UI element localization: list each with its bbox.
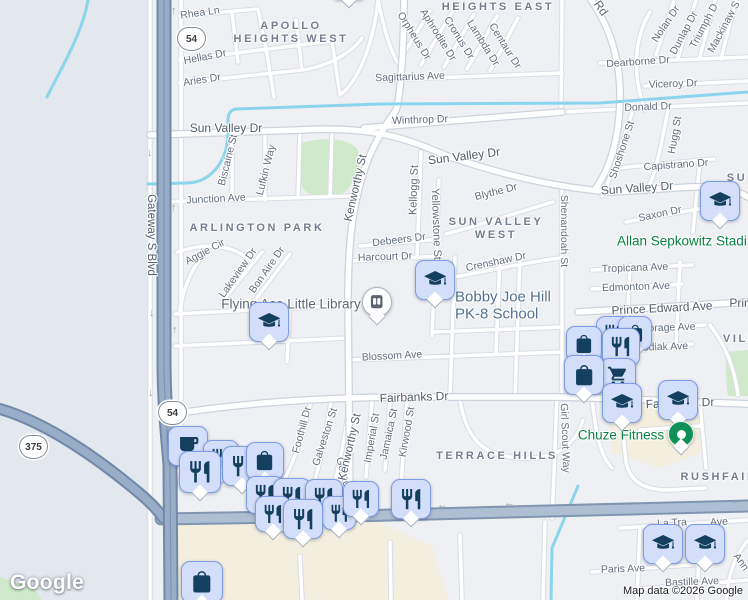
district-label: VILL — [723, 333, 748, 345]
district-label: APOLLO — [260, 20, 321, 32]
route-shield: 54 — [158, 401, 187, 425]
street-label: Harcourt Dr — [358, 250, 413, 264]
one-way-arrow: ↑ — [171, 6, 177, 17]
shopping-bag-icon — [189, 569, 215, 595]
street-label: Kellogg St — [407, 165, 421, 216]
street-label: Sun Valley Dr — [190, 121, 262, 135]
restaurant-marker[interactable] — [283, 499, 323, 539]
graduation-cap-icon — [693, 532, 717, 556]
graduation-cap-icon — [423, 268, 447, 292]
street-label: Winthrop Dr — [392, 113, 448, 127]
restaurant-icon — [187, 459, 213, 485]
street-label: Gateway S Blvd — [145, 194, 157, 276]
library-marker[interactable] — [362, 287, 392, 317]
one-way-arrow: ↓ — [147, 148, 153, 159]
restaurant-marker[interactable] — [179, 451, 221, 493]
one-way-arrow: ← — [437, 500, 448, 511]
district-label: HEIGHTS WEST — [234, 33, 349, 45]
restaurant-marker[interactable] — [391, 479, 431, 519]
book-icon — [368, 293, 385, 310]
restaurant-icon — [291, 507, 315, 531]
graduation-cap-icon — [257, 310, 281, 334]
district-label: WEST — [475, 229, 517, 241]
school-marker[interactable] — [658, 380, 698, 420]
street-label: Edmonton Ave — [602, 280, 670, 294]
one-way-arrow: ↑ — [172, 325, 178, 336]
graduation-cap-icon — [610, 391, 634, 415]
graduation-cap-icon — [666, 388, 690, 412]
store-marker[interactable] — [181, 561, 223, 600]
one-way-arrow: ← — [504, 498, 515, 509]
restaurant-icon — [609, 335, 632, 358]
school-marker[interactable] — [685, 524, 725, 564]
street-label: Yellowstone St — [429, 188, 443, 260]
graduation-cap-icon — [651, 532, 675, 556]
street-label: Fairbanks Dr — [379, 389, 448, 405]
district-label: RUSHFAIR — [680, 471, 748, 483]
district-label: TERRACE HILLS — [436, 450, 558, 462]
street-label: Prin — [729, 296, 748, 310]
street-label: Girl Scout Way — [558, 403, 572, 473]
one-way-arrow: ← — [730, 496, 741, 507]
school-marker[interactable] — [602, 383, 642, 423]
one-way-arrow: ↓ — [148, 388, 154, 399]
one-way-arrow: ↓ — [149, 308, 155, 319]
district-label: HEIGHTS EAST — [442, 1, 555, 13]
restaurant-icon — [399, 487, 423, 511]
school-marker[interactable] — [249, 302, 289, 342]
route-shield: 54 — [177, 27, 206, 51]
poi-label: Allan Sepkowitz Stadi — [617, 234, 747, 249]
map-canvas[interactable]: Google Map data ©2026 Google APOLLOHEIGH… — [0, 0, 748, 600]
school-marker[interactable] — [643, 524, 683, 564]
poi-label: Bobby Joe Hill — [455, 289, 551, 306]
street-label: Tropicana Ave — [602, 261, 669, 275]
google-logo[interactable]: Google — [10, 571, 84, 595]
restaurant-icon — [350, 488, 372, 510]
poi-label: Flying Ace Little Library — [221, 297, 361, 312]
store-marker[interactable] — [246, 442, 284, 480]
school-marker[interactable] — [415, 260, 455, 300]
one-way-arrow: ↑ — [171, 203, 177, 214]
route-shield: 375 — [19, 435, 48, 459]
school-marker[interactable] — [700, 181, 740, 221]
restaurant-marker[interactable] — [343, 481, 379, 517]
poi-label: PK-8 School — [455, 306, 538, 323]
street-label: Viceroy Dr — [648, 77, 697, 91]
fitness-marker[interactable] — [668, 421, 694, 447]
map-attribution: Map data ©2026 Google — [623, 585, 743, 597]
shopping-bag-icon — [253, 449, 276, 472]
shopping-bag-icon — [573, 333, 595, 355]
restaurant-icon — [262, 503, 284, 525]
store-marker[interactable] — [564, 355, 604, 395]
street-label: Paris Ave — [601, 562, 646, 576]
graduation-cap-icon — [708, 189, 732, 213]
shopping-bag-icon — [572, 363, 596, 387]
street-label: Donald Dr — [624, 100, 672, 114]
street-label: Shenandoah St — [558, 195, 570, 267]
street-label: Sagittarius Ave — [375, 70, 445, 84]
district-label: ARLINGTON PARK — [190, 222, 325, 234]
west-land-area — [0, 0, 149, 600]
district-label: SUN VALLEY — [449, 216, 544, 228]
